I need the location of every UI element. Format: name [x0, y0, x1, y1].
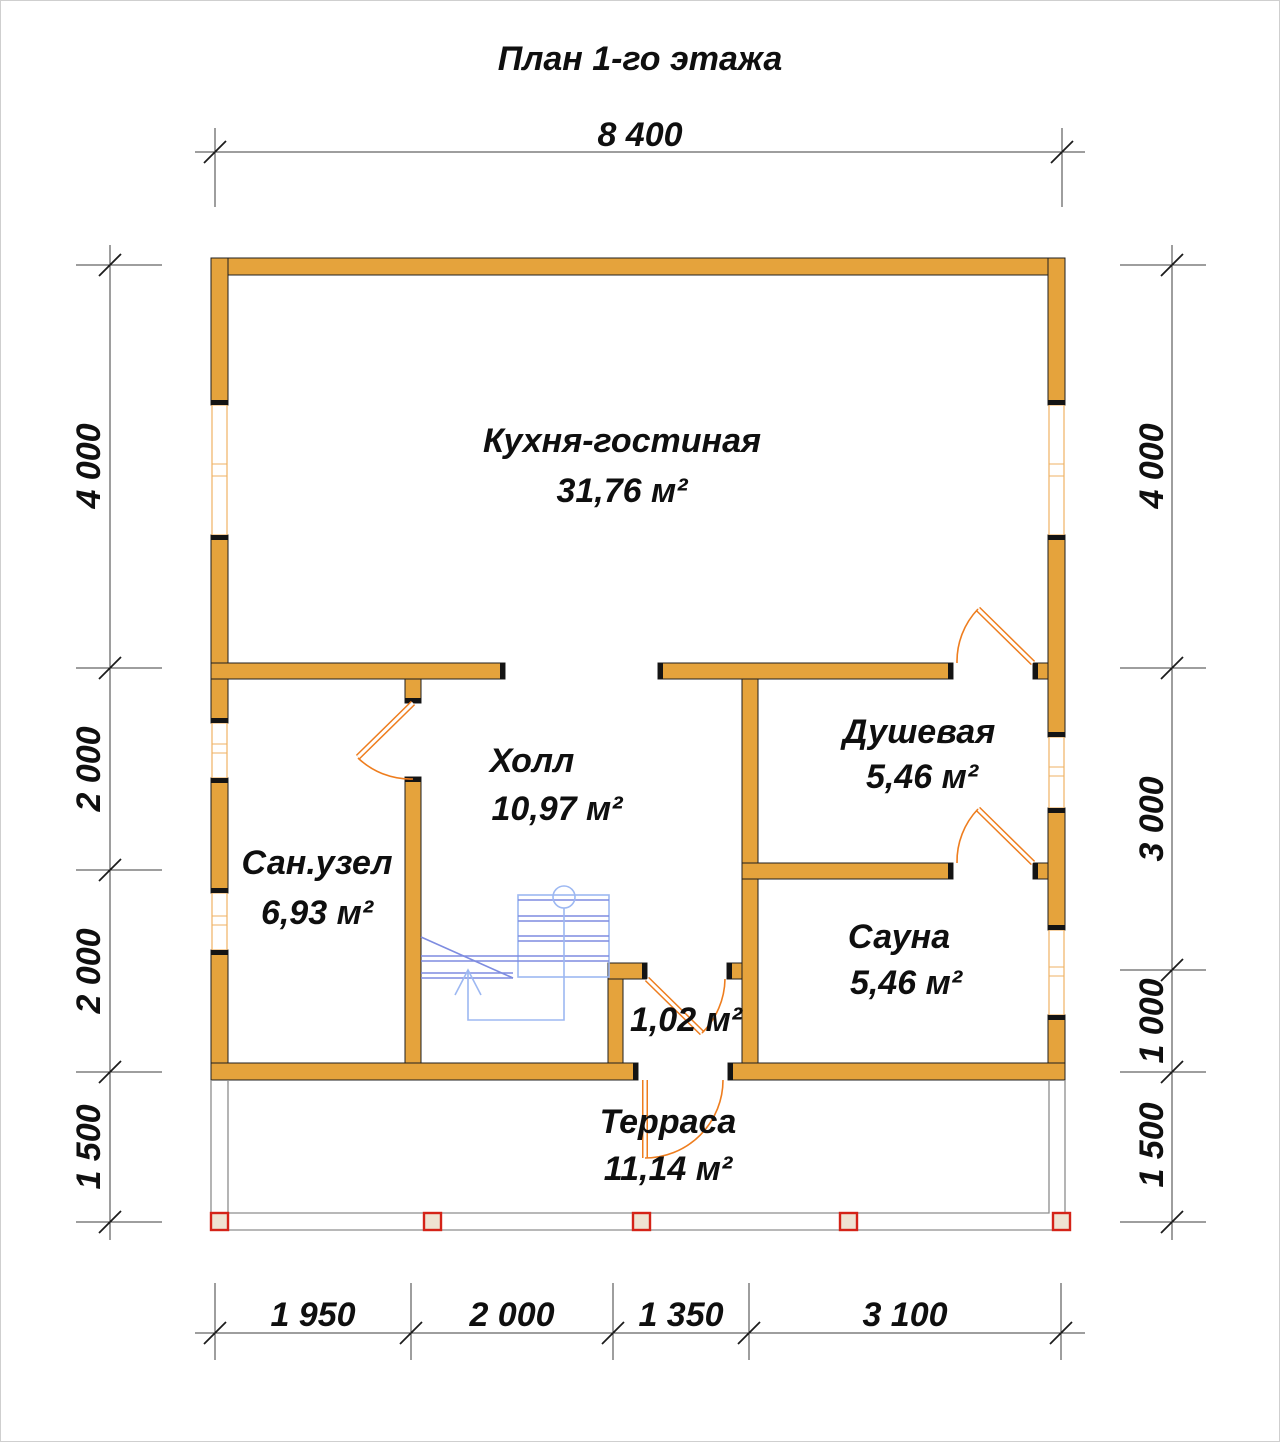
- room-shower: Душевая 5,46 м²: [840, 713, 995, 796]
- dim-label: 4 000: [1133, 423, 1171, 509]
- window: [1049, 405, 1064, 535]
- room-label: Душевая: [840, 713, 995, 751]
- room-area: 10,97 м²: [491, 790, 624, 828]
- post: [633, 1213, 650, 1230]
- wall-exterior-top: [211, 258, 1065, 275]
- dimension-left: 4 000 2 000 2 000 1 500: [70, 245, 162, 1240]
- room-area: 1,02 м²: [630, 1001, 744, 1039]
- wall-exterior-left: [211, 535, 228, 723]
- dim-label: 2 000: [70, 726, 108, 812]
- door-shower-entry: [957, 609, 1033, 663]
- terrace-posts: [211, 1213, 1070, 1230]
- room-kitchen-living: Кухня-гостиная 31,76 м²: [483, 422, 761, 510]
- dimension-right: 4 000 3 000 1 000 1 500: [1120, 245, 1206, 1240]
- room-terrace: Терраса 11,14 м²: [600, 1103, 737, 1188]
- room-area: 11,14 м²: [604, 1150, 734, 1188]
- window: [1049, 930, 1064, 1015]
- wall-exterior-left: [211, 950, 228, 1080]
- post: [424, 1213, 441, 1230]
- wall-interior-kitchen-left: [211, 663, 505, 679]
- window: [212, 893, 227, 950]
- wall-exterior-left: [211, 258, 228, 405]
- dim-label: 1 350: [638, 1296, 723, 1334]
- door-arc: [957, 609, 978, 663]
- room-bathroom: Сан.узел 6,93 м²: [242, 844, 393, 932]
- door-bathroom: [358, 703, 413, 779]
- room-hall: Холл 10,97 м²: [488, 742, 624, 828]
- room-area: 31,76 м²: [556, 472, 689, 510]
- room-area: 5,46 м²: [866, 758, 980, 796]
- room-closet: 1,02 м²: [630, 1001, 744, 1039]
- dim-label: 1 500: [1133, 1102, 1171, 1187]
- stairs-icon: [421, 886, 609, 1020]
- dim-label: 1 000: [1133, 978, 1171, 1063]
- wall-interior-bathroom: [405, 777, 421, 1063]
- dimension-bottom: 1 950 2 000 1 350 3 100: [195, 1283, 1085, 1360]
- door-sauna: [957, 809, 1033, 863]
- wall-interior-shower-sauna: [742, 863, 953, 879]
- post: [840, 1213, 857, 1230]
- wall-exterior-right: [1048, 258, 1065, 405]
- dimension-top: 8 400: [195, 116, 1085, 207]
- dim-label: 4 000: [70, 423, 108, 509]
- room-area: 5,46 м²: [850, 964, 964, 1002]
- wall-interior-closet-left: [608, 979, 623, 1063]
- post: [1053, 1213, 1070, 1230]
- dim-label: 2 000: [70, 928, 108, 1014]
- room-label: Сан.узел: [242, 844, 393, 882]
- dim-label: 1 950: [270, 1296, 355, 1334]
- wall-interior-closet-top: [608, 963, 647, 979]
- room-label: Холл: [488, 742, 574, 780]
- floor-plan: План 1-го этажа: [0, 0, 1280, 1442]
- wall-exterior-right: [1048, 808, 1065, 930]
- room-sauna: Сауна 5,46 м²: [848, 918, 964, 1002]
- dim-label: 8 400: [597, 116, 682, 154]
- walls: [211, 258, 1065, 1080]
- dim-label: 2 000: [468, 1296, 554, 1334]
- door-arc: [358, 758, 413, 779]
- window: [1049, 737, 1064, 808]
- wall-exterior-bottom: [728, 1063, 1065, 1080]
- room-label: Сауна: [848, 918, 950, 956]
- wall-interior-kitchen-right: [658, 663, 953, 679]
- door-arc: [957, 809, 978, 863]
- dim-label: 3 100: [862, 1296, 947, 1334]
- room-label: Терраса: [600, 1103, 737, 1141]
- dim-label: 1 500: [70, 1104, 108, 1189]
- post: [211, 1213, 228, 1230]
- wall-exterior-right: [1048, 535, 1065, 737]
- room-area: 6,93 м²: [261, 894, 375, 932]
- window: [212, 723, 227, 778]
- dim-label: 3 000: [1133, 776, 1171, 861]
- window: [212, 405, 227, 535]
- room-label: Кухня-гостиная: [483, 422, 761, 460]
- wall-exterior-left: [211, 778, 228, 893]
- wall-exterior-bottom: [211, 1063, 638, 1080]
- page-title: План 1-го этажа: [498, 40, 783, 78]
